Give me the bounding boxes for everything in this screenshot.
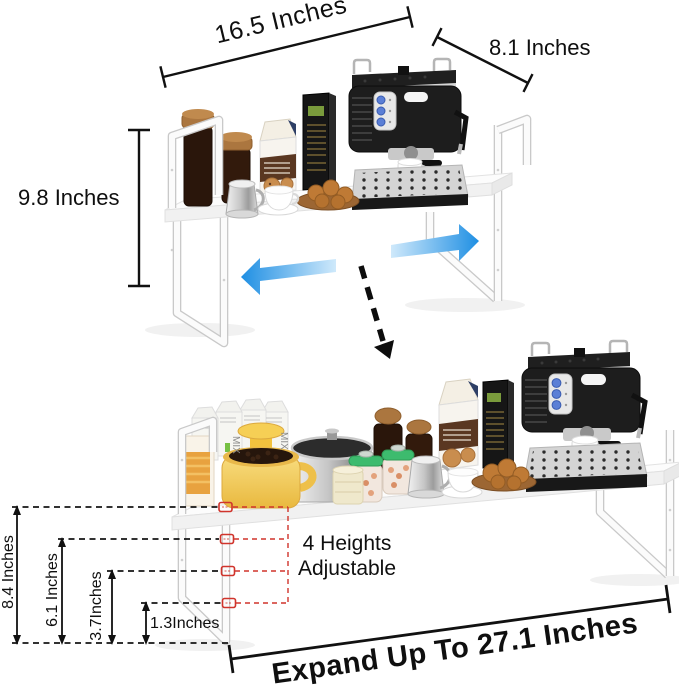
transform-down-arrow-icon	[361, 266, 394, 359]
bottom-espresso-machine	[522, 341, 647, 492]
mix-box-label: MIX	[278, 432, 289, 450]
height-arrow-3-7	[108, 569, 116, 645]
adjustable-heights-note: 4 Heights Adjustable	[291, 531, 403, 581]
dim-label-leg-height-1-3: 1.3Inches	[150, 615, 219, 633]
top-shelf-illustration	[145, 59, 527, 343]
coffee-box	[303, 93, 336, 190]
expand-right-arrow-icon	[391, 224, 479, 261]
dim-label-top-height: 9.8 Inches	[18, 185, 123, 211]
dim-label-depth: 8.1 Inches	[489, 35, 599, 61]
top-espresso-machine	[349, 59, 468, 210]
shadow	[405, 298, 525, 312]
product-dimension-diagram: MIX MIX	[0, 0, 679, 693]
bottom-shelf-illustration: MIX MIX	[155, 341, 679, 651]
dim-line-top-height	[128, 130, 150, 286]
height-arrow-1-3	[142, 601, 150, 645]
adjustable-note-line1: 4 Heights	[291, 531, 403, 556]
mix-box-label: MIX	[230, 436, 241, 454]
expand-left-arrow-icon	[241, 258, 336, 295]
cookie-tray	[472, 459, 536, 491]
adjustable-note-line2: Adjustable	[291, 556, 403, 581]
coffee-box	[483, 380, 514, 468]
cookie-package	[439, 379, 478, 470]
shadow	[155, 639, 255, 651]
dim-label-leg-height-8-4: 8.4 Inches	[0, 531, 18, 613]
dim-label-leg-height-3-7: 3.7Inches	[88, 566, 106, 646]
dim-label-leg-height-6-1: 6.1 Inches	[44, 549, 62, 631]
cookie-package	[260, 119, 296, 194]
cream-cup	[333, 466, 363, 504]
